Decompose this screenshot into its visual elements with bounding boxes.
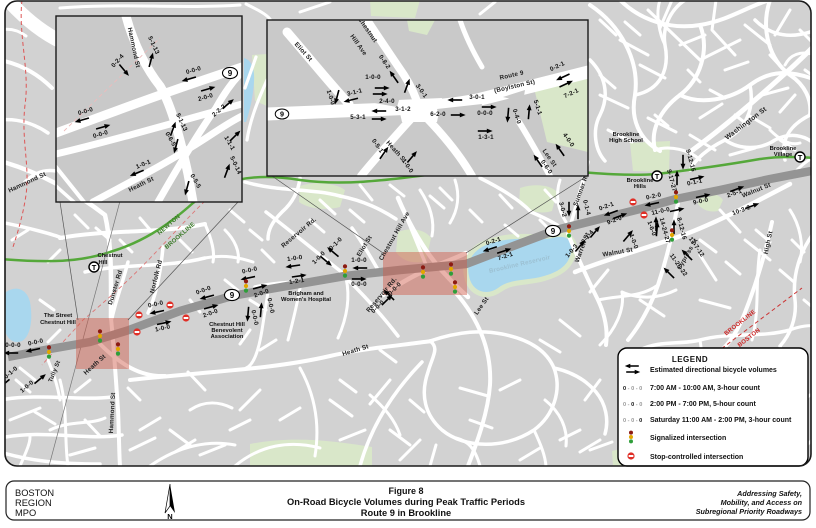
svg-text:5-3-1: 5-3-1 bbox=[350, 114, 366, 121]
svg-text:7:00 AM - 10:00 AM, 3-hour cou: 7:00 AM - 10:00 AM, 3-hour count bbox=[650, 385, 761, 392]
svg-text:Saturday 11:00 AM - 2:00 PM, 3: Saturday 11:00 AM - 2:00 PM, 3-hour coun… bbox=[650, 417, 792, 424]
svg-text:BOSTON: BOSTON bbox=[15, 488, 54, 498]
svg-text:Hills: Hills bbox=[634, 184, 646, 190]
svg-text:Hill: Hill bbox=[98, 260, 107, 266]
svg-text:0 - 0 - 0: 0 - 0 - 0 bbox=[623, 402, 642, 408]
svg-text:Estimated directional bicycle: Estimated directional bicycle volumes bbox=[650, 367, 777, 374]
svg-text:1-3-1: 1-3-1 bbox=[478, 134, 494, 141]
svg-text:1-0-0: 1-0-0 bbox=[365, 74, 381, 81]
svg-text:0-0-0: 0-0-0 bbox=[5, 342, 21, 349]
svg-text:Stop-controlled intersection: Stop-controlled intersection bbox=[650, 454, 743, 461]
svg-text:High School: High School bbox=[609, 138, 643, 144]
svg-text:0 - 0 - 0: 0 - 0 - 0 bbox=[623, 418, 642, 424]
svg-text:0-0-0: 0-0-0 bbox=[477, 110, 493, 117]
svg-text:3-1-2: 3-1-2 bbox=[395, 106, 411, 113]
svg-text:2-4-0: 2-4-0 bbox=[379, 98, 395, 105]
svg-text:Chestnut: Chestnut bbox=[97, 253, 122, 259]
svg-text:Signalized intersection: Signalized intersection bbox=[650, 435, 726, 442]
svg-text:MPO: MPO bbox=[15, 508, 36, 518]
svg-text:N: N bbox=[167, 512, 172, 521]
svg-text:Chestnut Hill: Chestnut Hill bbox=[40, 320, 76, 326]
svg-text:Figure 8: Figure 8 bbox=[388, 486, 423, 496]
svg-text:6-2-0: 6-2-0 bbox=[430, 111, 446, 118]
svg-text:LEGEND: LEGEND bbox=[672, 355, 708, 364]
svg-text:On-Road Bicycle Volumes during: On-Road Bicycle Volumes during Peak Traf… bbox=[287, 497, 525, 507]
svg-text:2:00 PM - 7:00 PM, 5-hour coun: 2:00 PM - 7:00 PM, 5-hour count bbox=[650, 401, 756, 408]
svg-text:The Street: The Street bbox=[44, 313, 72, 319]
svg-text:0-0-0: 0-0-0 bbox=[351, 281, 367, 288]
svg-text:Association: Association bbox=[211, 334, 244, 340]
svg-text:Women's Hospital: Women's Hospital bbox=[281, 297, 331, 303]
svg-text:Route 9 in Brookline: Route 9 in Brookline bbox=[361, 508, 451, 518]
svg-text:Subregional Priority Roadways: Subregional Priority Roadways bbox=[696, 507, 802, 516]
svg-text:REGION: REGION bbox=[15, 498, 52, 508]
svg-text:3-0-1: 3-0-1 bbox=[469, 94, 485, 101]
svg-text:Village: Village bbox=[774, 152, 793, 158]
svg-text:Addressing Safety,: Addressing Safety, bbox=[736, 489, 802, 498]
svg-text:Mobility, and Access on: Mobility, and Access on bbox=[721, 498, 803, 507]
svg-text:1-0-0: 1-0-0 bbox=[351, 257, 367, 264]
svg-text:0 - 0 - 0: 0 - 0 - 0 bbox=[623, 386, 642, 392]
